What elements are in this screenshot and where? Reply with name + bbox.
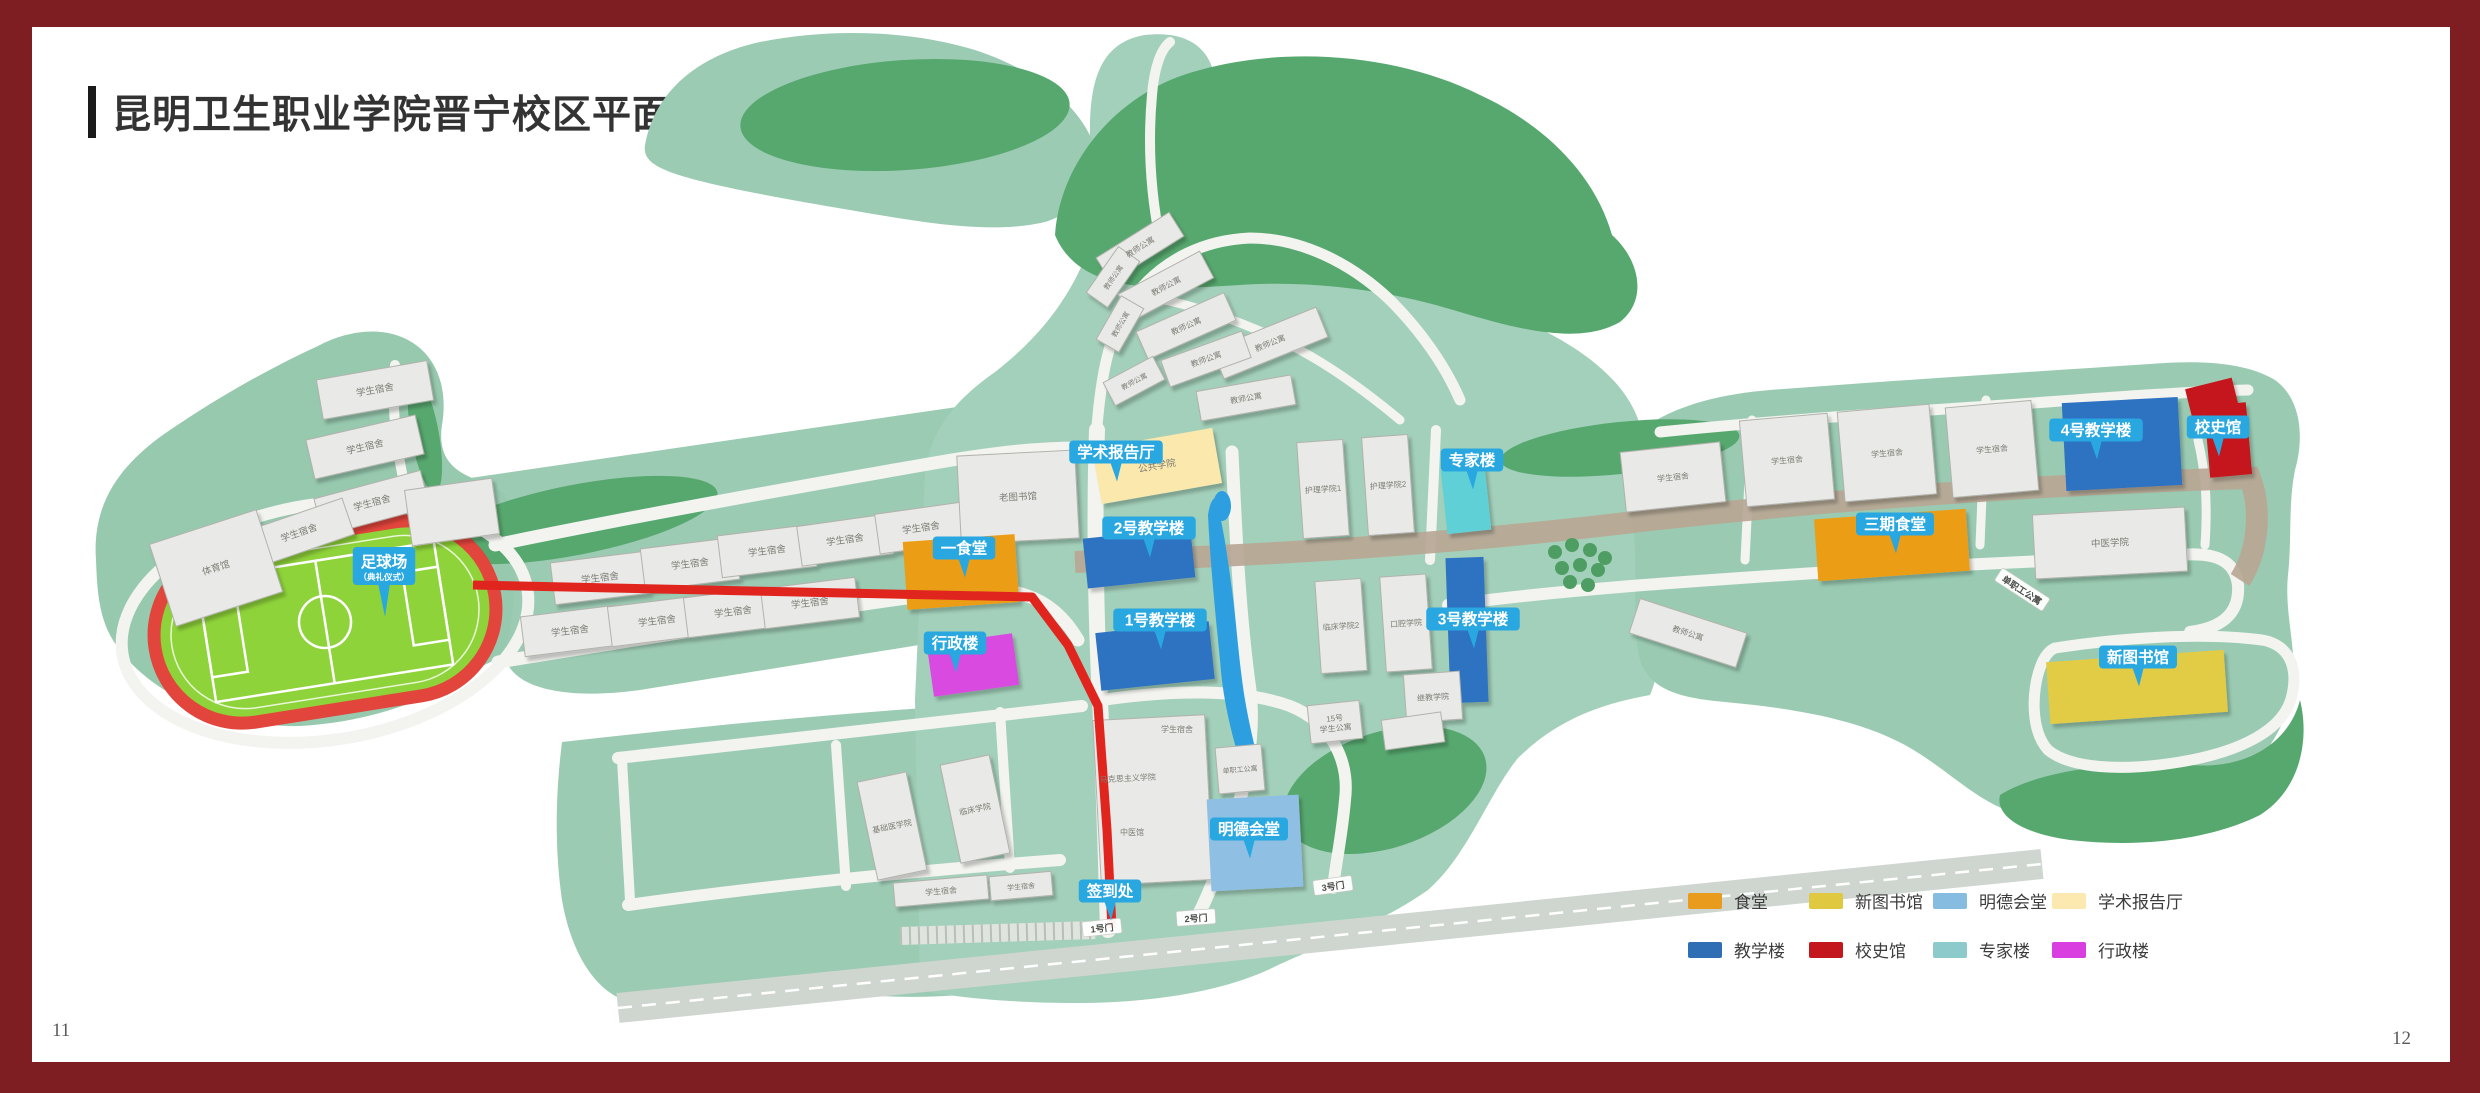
svg-text:行政楼: 行政楼 xyxy=(931,634,979,653)
svg-text:4号教学楼: 4号教学楼 xyxy=(2061,421,2132,440)
svg-text:明德会堂: 明德会堂 xyxy=(1218,820,1280,839)
svg-text:3号教学楼: 3号教学楼 xyxy=(1438,610,1509,629)
legend-label: 教学楼 xyxy=(1734,937,1785,962)
legend-item: 食堂 xyxy=(1688,888,1809,913)
legend-swatch xyxy=(2052,942,2086,958)
legend-swatch xyxy=(1809,942,1843,958)
legend-label: 新图书馆 xyxy=(1855,888,1923,913)
campus-building xyxy=(2062,397,2182,491)
campus-building xyxy=(1207,795,1304,892)
svg-text:1号教学楼: 1号教学楼 xyxy=(1125,611,1196,630)
svg-text:学术报告厅: 学术报告厅 xyxy=(1077,443,1155,462)
svg-text:（典礼仪式）: （典礼仪式） xyxy=(358,572,409,582)
svg-text:一食堂: 一食堂 xyxy=(941,539,988,558)
legend-swatch xyxy=(1933,942,1967,958)
legend-label: 食堂 xyxy=(1734,888,1768,913)
legend-swatch xyxy=(1933,893,1967,909)
legend-label: 专家楼 xyxy=(1979,937,2030,962)
legend-swatch xyxy=(2052,893,2086,909)
map-legend: 食堂新图书馆明德会堂学术报告厅教学楼校史馆专家楼行政楼 xyxy=(1688,888,2183,962)
legend-label: 学术报告厅 xyxy=(2098,888,2183,913)
legend-swatch xyxy=(1688,942,1722,958)
legend-swatch xyxy=(1809,893,1843,909)
legend-item: 明德会堂 xyxy=(1933,888,2052,913)
campus-building xyxy=(2204,402,2252,477)
legend-item: 行政楼 xyxy=(2052,937,2183,962)
legend-swatch xyxy=(1688,893,1722,909)
page-number-right: 12 xyxy=(2392,1028,2411,1050)
legend-item: 新图书馆 xyxy=(1809,888,1933,913)
legend-label: 明德会堂 xyxy=(1979,888,2047,913)
campus-building xyxy=(1441,466,1491,534)
svg-text:校史馆: 校史馆 xyxy=(2195,418,2242,437)
svg-text:三期食堂: 三期食堂 xyxy=(1864,515,1926,534)
legend-item: 学术报告厅 xyxy=(2052,888,2183,913)
legend-label: 校史馆 xyxy=(1855,937,1906,962)
map-text-label: 学生宿舍 xyxy=(1161,724,1193,734)
map-text-label: 中医馆 xyxy=(1120,827,1144,837)
legend-item: 专家楼 xyxy=(1933,937,2052,962)
svg-text:老图书馆: 老图书馆 xyxy=(999,490,1038,504)
legend-item: 校史馆 xyxy=(1809,937,1933,962)
legend-item: 教学楼 xyxy=(1688,937,1809,962)
campus-building xyxy=(405,478,500,546)
svg-text:中医学院: 中医学院 xyxy=(2091,536,2130,550)
page-number-left: 11 xyxy=(52,1020,70,1042)
campus-map-page: 昆明卫生职业学院晋宁校区平面图 xyxy=(0,0,2480,1093)
building-label: 中医学院 xyxy=(2091,536,2130,550)
building-label: 老图书馆 xyxy=(999,490,1038,504)
gate-label: 2号门 xyxy=(1176,909,1216,927)
svg-text:足球场: 足球场 xyxy=(361,552,408,571)
svg-text:专家楼: 专家楼 xyxy=(1449,451,1496,470)
svg-text:签到处: 签到处 xyxy=(1086,882,1134,901)
svg-text:新图书馆: 新图书馆 xyxy=(2107,648,2169,667)
legend-label: 行政楼 xyxy=(2098,937,2149,962)
svg-text:2号教学楼: 2号教学楼 xyxy=(1114,519,1185,538)
svg-text:2号门: 2号门 xyxy=(1184,912,1208,925)
